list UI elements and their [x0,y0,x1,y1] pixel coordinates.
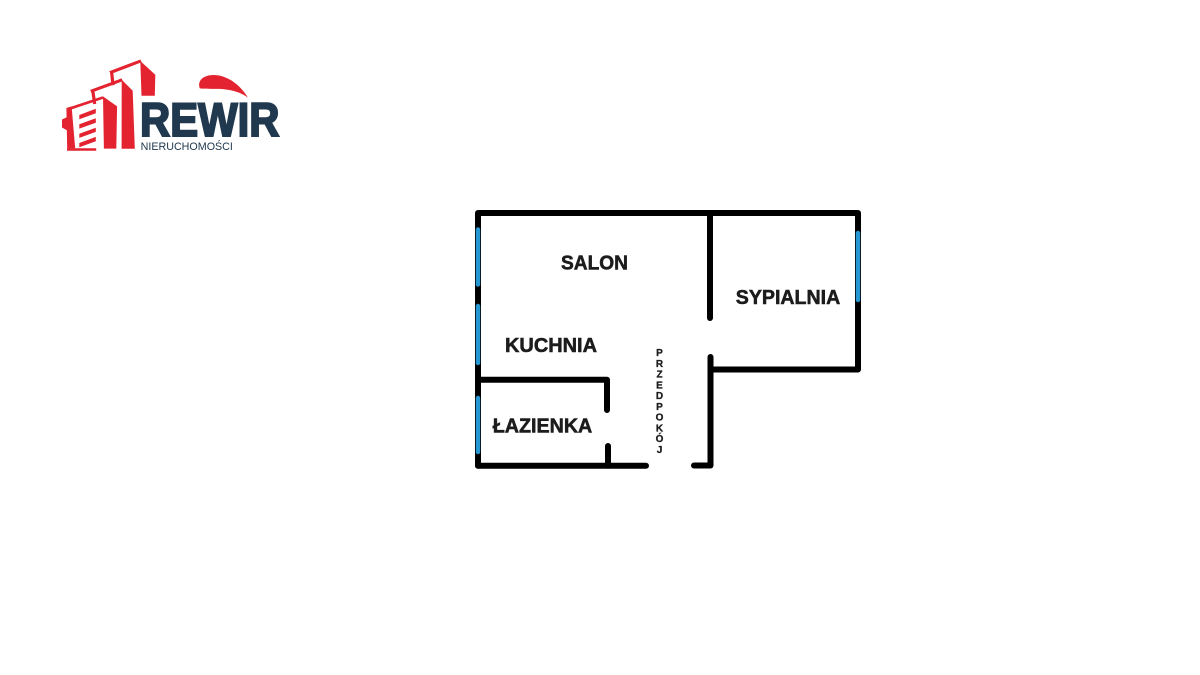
svg-text:J: J [657,445,663,456]
svg-text:O: O [656,413,664,424]
svg-text:KUCHNIA: KUCHNIA [505,334,597,357]
svg-text:Z: Z [656,370,662,381]
svg-text:P: P [656,402,663,413]
svg-text:SALON: SALON [561,252,628,275]
svg-text:Ó: Ó [656,432,664,445]
svg-text:K: K [656,424,664,435]
svg-text:ŁAZIENKA: ŁAZIENKA [493,415,593,438]
svg-text:D: D [656,391,663,402]
svg-text:R: R [656,359,664,370]
svg-text:P: P [656,348,663,359]
svg-text:E: E [656,380,663,391]
svg-text:NIERUCHOMOŚCI: NIERUCHOMOŚCI [141,140,233,153]
svg-text:SYPIALNIA: SYPIALNIA [736,286,841,309]
svg-text:REWIR: REWIR [140,93,279,146]
